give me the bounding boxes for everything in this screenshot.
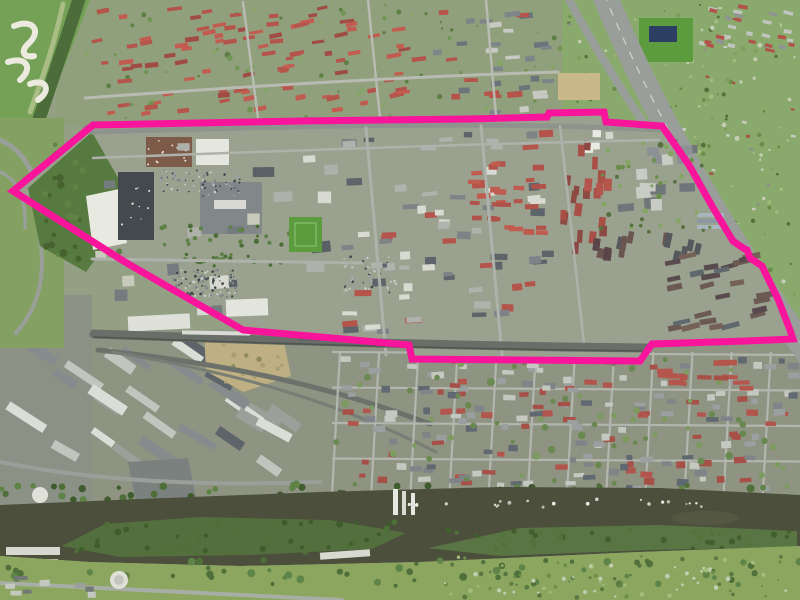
map-layer-brown-box-store xyxy=(146,137,192,167)
map-layer-tank-a xyxy=(32,487,48,503)
map-layer-mall-roof-stripe xyxy=(214,200,246,209)
map-layer-water-light-1 xyxy=(671,511,739,525)
aerial-map-view[interactable] xyxy=(0,0,800,600)
map-layer-weir-3 xyxy=(411,493,415,515)
map-layer-dark-department-store xyxy=(118,172,154,240)
map-layer-weir-2 xyxy=(402,491,406,515)
map-layer-tank-b-inner xyxy=(114,575,124,585)
map-layer-tan-courts xyxy=(558,73,600,100)
map-layer-ne-tennis-courts xyxy=(649,26,677,42)
map-layer-lock-left-1 xyxy=(6,547,60,555)
map-layer-white-row-2 xyxy=(226,298,269,316)
satellite-imagery-canvas[interactable] xyxy=(0,0,800,600)
map-layer-north-residential-base xyxy=(56,0,586,126)
map-layer-weir-1 xyxy=(393,489,398,515)
map-layer-central-pitch xyxy=(289,217,322,252)
